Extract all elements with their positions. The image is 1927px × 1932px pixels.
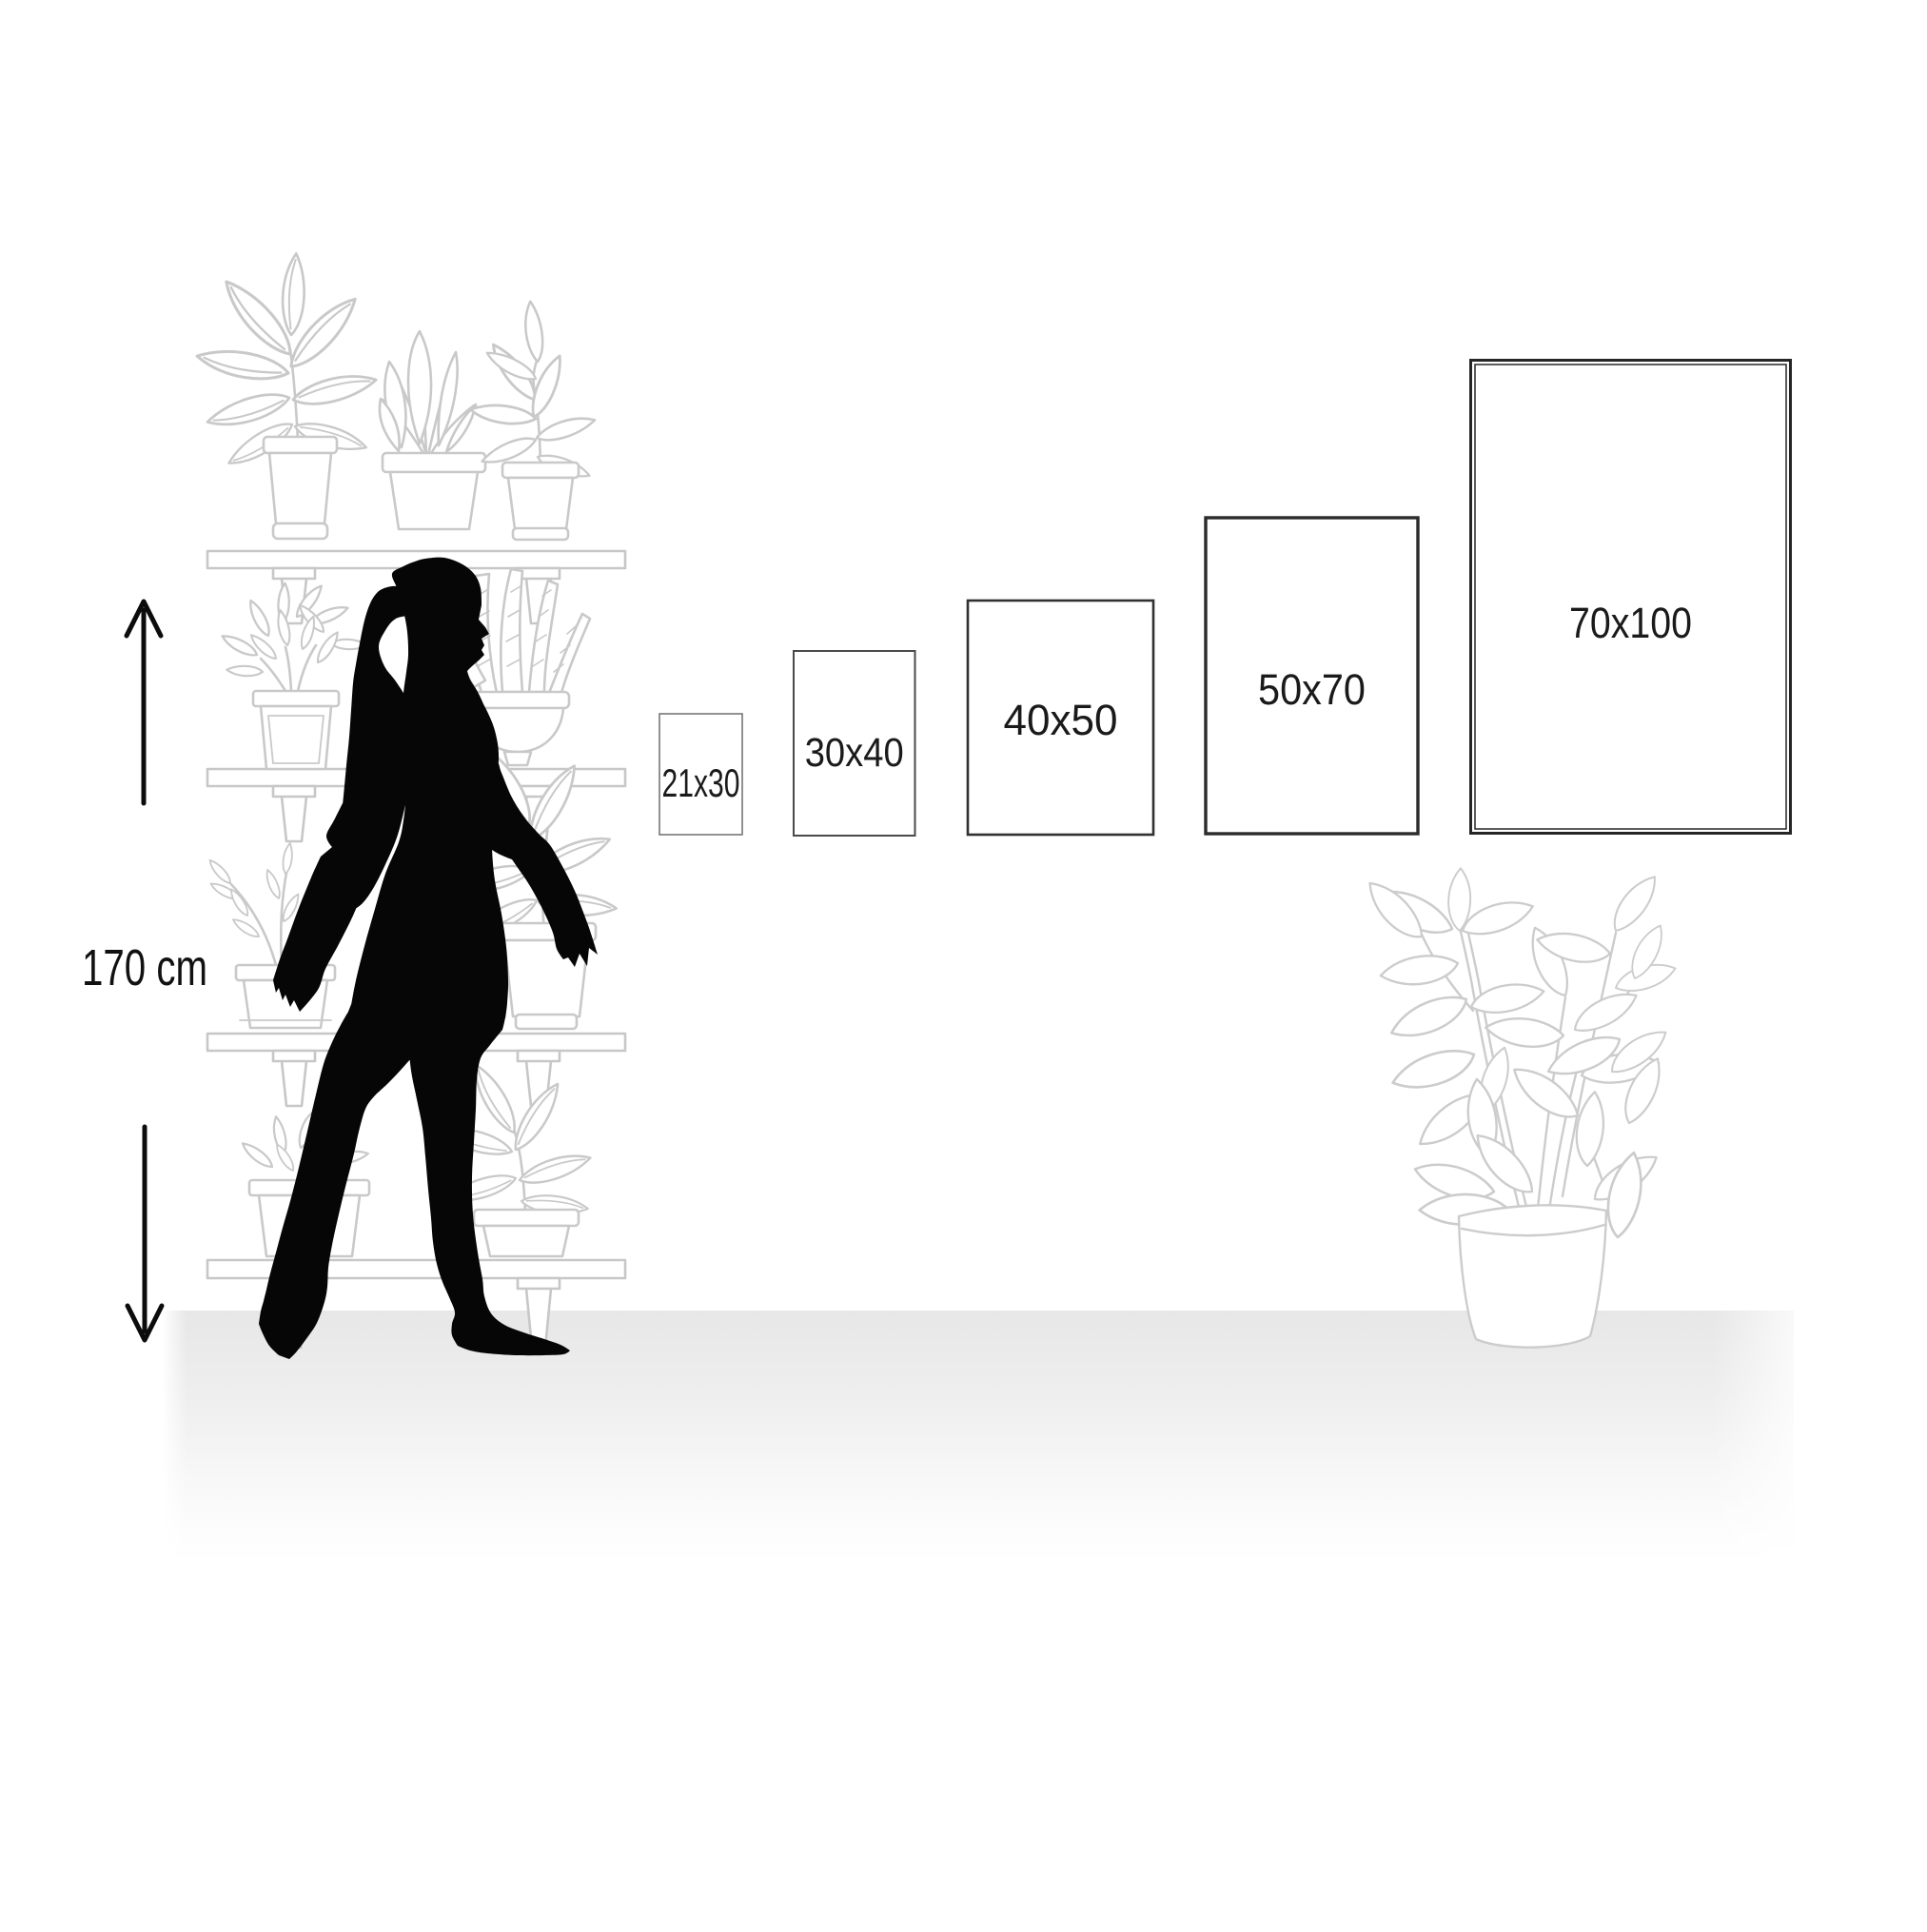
svg-text:50x70: 50x70 [1258, 665, 1366, 714]
svg-text:21x30: 21x30 [662, 760, 740, 805]
svg-text:30x40: 30x40 [805, 730, 904, 776]
svg-text:70x100: 70x100 [1569, 599, 1692, 647]
svg-text:40x50: 40x50 [1004, 696, 1118, 744]
svg-text:170 cm: 170 cm [82, 939, 207, 996]
